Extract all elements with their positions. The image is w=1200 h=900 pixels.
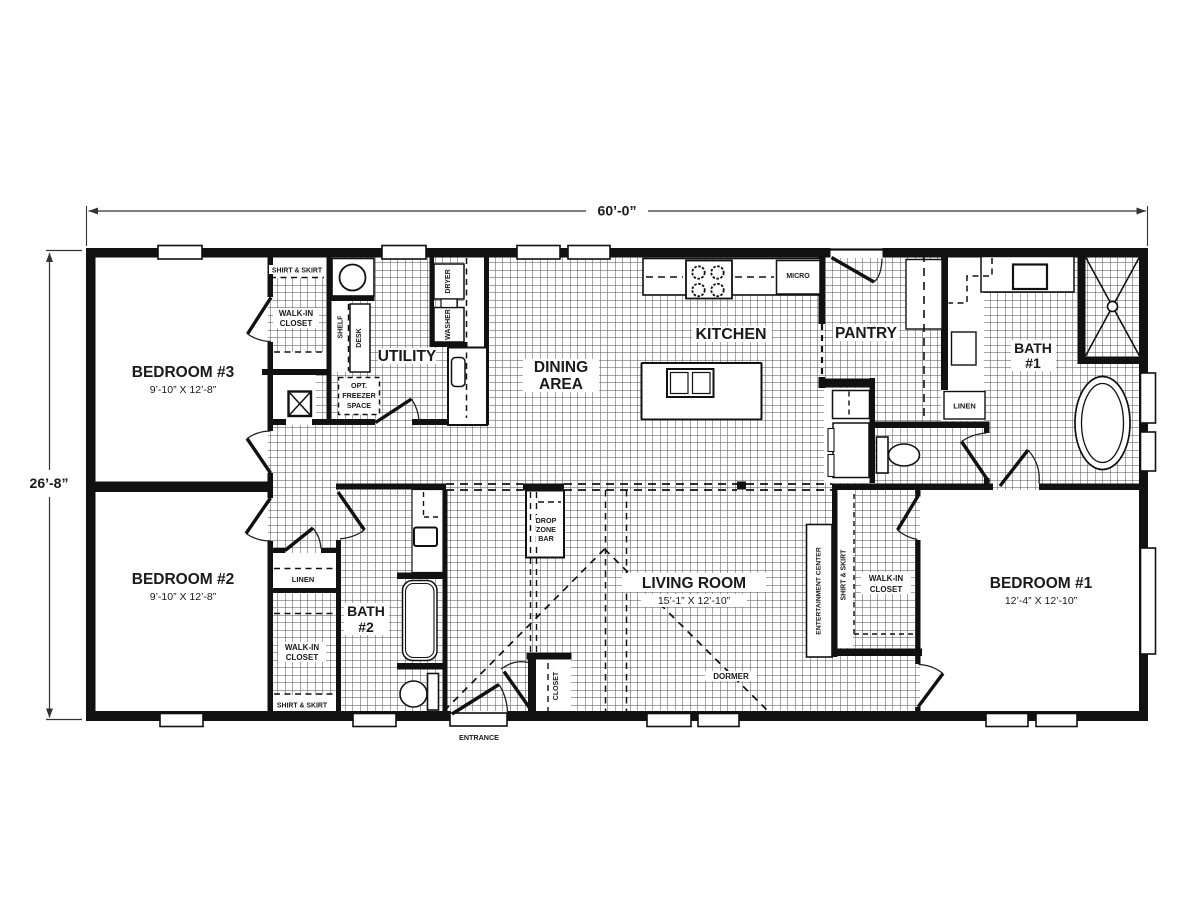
svg-text:BEDROOM #2: BEDROOM #2: [132, 571, 235, 588]
svg-text:SHIRT & SKIRT: SHIRT & SKIRT: [841, 549, 848, 601]
svg-text:SPACE: SPACE: [347, 401, 371, 410]
svg-text:OPT.: OPT.: [351, 381, 367, 390]
svg-text:WASHER: WASHER: [445, 309, 452, 340]
svg-text:BATH: BATH: [347, 603, 385, 619]
svg-text:PANTRY: PANTRY: [835, 325, 898, 342]
svg-text:CLOSET: CLOSET: [553, 671, 560, 700]
svg-text:WALK-IN: WALK-IN: [869, 574, 903, 583]
svg-text:9’-10” X 12’-8”: 9’-10” X 12’-8”: [150, 591, 217, 603]
svg-text:9’-10” X 12’-8”: 9’-10” X 12’-8”: [150, 384, 217, 396]
svg-text:LIVING ROOM: LIVING ROOM: [642, 575, 746, 592]
svg-text:SHIRT & SKIRT: SHIRT & SKIRT: [277, 703, 328, 710]
svg-text:BEDROOM #1: BEDROOM #1: [990, 575, 1093, 592]
svg-text:WALK-IN: WALK-IN: [279, 309, 313, 318]
svg-text:UTILITY: UTILITY: [378, 348, 437, 365]
svg-text:#2: #2: [358, 619, 374, 635]
svg-text:AREA: AREA: [539, 376, 583, 393]
svg-text:KITCHEN: KITCHEN: [695, 326, 766, 343]
svg-text:SHIRT & SKIRT: SHIRT & SKIRT: [272, 268, 323, 275]
svg-text:15’-1” X 12’-10”: 15’-1” X 12’-10”: [658, 595, 731, 607]
svg-text:BATH: BATH: [1014, 340, 1052, 356]
svg-text:BEDROOM #3: BEDROOM #3: [132, 364, 235, 381]
svg-text:BAR: BAR: [538, 534, 554, 543]
svg-text:MICRO: MICRO: [786, 273, 810, 280]
svg-text:WALK-IN: WALK-IN: [285, 643, 319, 652]
svg-text:12’-4” X 12’-10”: 12’-4” X 12’-10”: [1005, 595, 1078, 607]
svg-text:CLOSET: CLOSET: [280, 319, 313, 328]
svg-text:DESK: DESK: [356, 328, 363, 347]
svg-text:LINEN: LINEN: [953, 402, 976, 411]
svg-text:LINEN: LINEN: [292, 575, 315, 584]
svg-text:ZONE: ZONE: [536, 525, 556, 534]
svg-text:ENTERTAINMENT CENTER: ENTERTAINMENT CENTER: [816, 547, 823, 635]
svg-text:SHELF: SHELF: [338, 315, 345, 339]
svg-text:DORMER: DORMER: [713, 672, 749, 681]
svg-text:#1: #1: [1025, 355, 1041, 371]
svg-text:DROP: DROP: [536, 516, 557, 525]
svg-text:CLOSET: CLOSET: [286, 653, 319, 662]
svg-text:26’-8”: 26’-8”: [30, 475, 69, 491]
svg-text:60’-0”: 60’-0”: [598, 203, 637, 219]
svg-text:DINING: DINING: [534, 359, 588, 376]
svg-text:CLOSET: CLOSET: [870, 585, 903, 594]
svg-text:FREEZER: FREEZER: [342, 391, 376, 400]
svg-text:DRYER: DRYER: [445, 269, 452, 293]
svg-text:ENTRANCE: ENTRANCE: [459, 733, 499, 742]
